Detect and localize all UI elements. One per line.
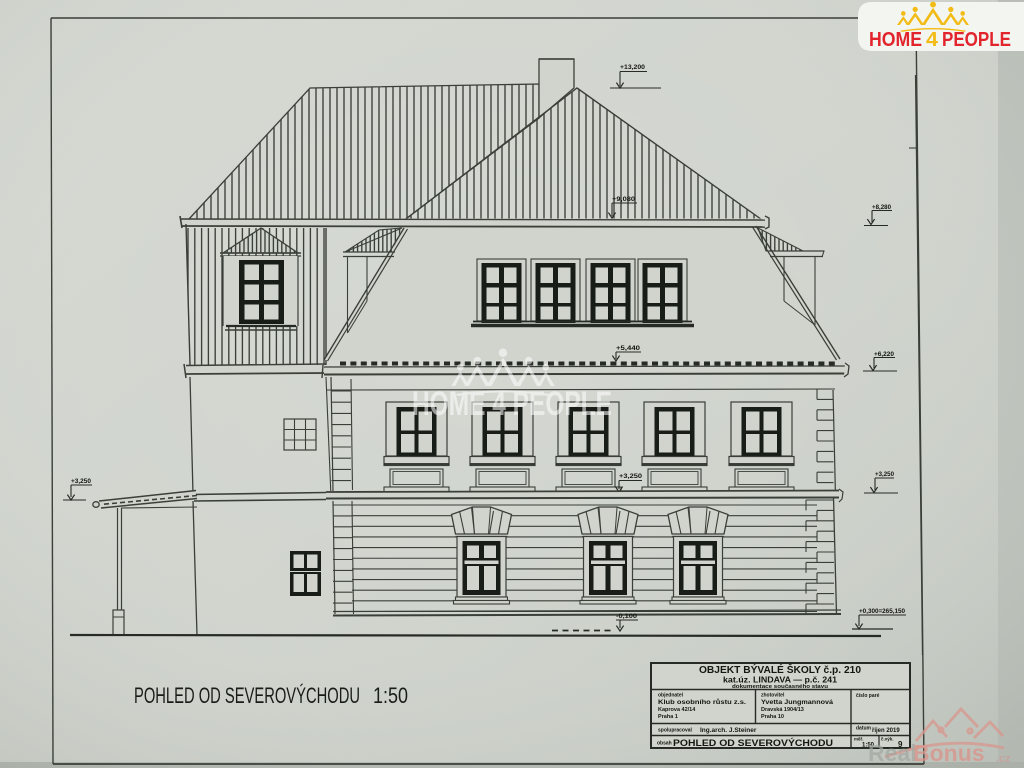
svg-text:+0,300=265,150: +0,300=265,150 [859, 608, 906, 615]
svg-text:PEOPLE: PEOPLE [942, 28, 1011, 51]
svg-text:číslo paré: číslo paré [856, 693, 880, 699]
svg-text:HOME: HOME [869, 28, 922, 51]
svg-text:1:50: 1:50 [373, 683, 408, 708]
svg-text:+5,440: +5,440 [616, 345, 640, 352]
svg-text:Klub osobního růstu z.s.: Klub osobního růstu z.s. [658, 698, 746, 706]
svg-text:Kaprova 42/14: Kaprova 42/14 [658, 707, 696, 713]
svg-text:dokumentace současného stavu: dokumentace současného stavu [732, 684, 828, 690]
svg-text:obsah: obsah [657, 741, 672, 747]
svg-text:HOME 4 PEOPLE: HOME 4 PEOPLE [412, 385, 612, 423]
svg-text:Bonus: Bonus [913, 740, 985, 766]
svg-text:+9,080: +9,080 [612, 196, 635, 203]
svg-text:Dravská 1904/13: Dravská 1904/13 [761, 707, 804, 713]
svg-text:4: 4 [926, 28, 939, 51]
svg-text:Yvetta Jungmannová: Yvetta Jungmannová [761, 699, 833, 706]
svg-text:OBJEKT BÝVALÉ ŠKOLY č.p. 210: OBJEKT BÝVALÉ ŠKOLY č.p. 210 [699, 663, 861, 676]
svg-text:-0,100: -0,100 [616, 613, 638, 620]
svg-text:Ing.arch. J.Steiner: Ing.arch. J.Steiner [700, 727, 757, 734]
svg-text:objednatel: objednatel [658, 693, 684, 699]
svg-text:POHLED OD SEVEROVÝCHODU: POHLED OD SEVEROVÝCHODU [134, 683, 360, 708]
svg-text:datum: datum [856, 726, 872, 732]
svg-text:Praha 10: Praha 10 [761, 714, 784, 720]
svg-text:Real: Real [868, 740, 917, 766]
svg-text:+3,250: +3,250 [619, 473, 642, 480]
svg-text:+3,250: +3,250 [71, 478, 92, 485]
svg-text:.cz: .cz [996, 753, 1011, 765]
svg-text:říjen 2019: říjen 2019 [872, 728, 900, 734]
svg-text:POHLED OD SEVEROVÝCHODU: POHLED OD SEVEROVÝCHODU [673, 737, 833, 748]
svg-text:spolupracoval: spolupracoval [658, 728, 693, 734]
svg-text:+13,200: +13,200 [620, 64, 645, 71]
svg-text:zhotovitel: zhotovitel [761, 693, 785, 699]
svg-text:+3,250: +3,250 [875, 472, 895, 478]
svg-text:měř.: měř. [854, 737, 864, 742]
svg-text:Praha 1: Praha 1 [658, 714, 678, 720]
